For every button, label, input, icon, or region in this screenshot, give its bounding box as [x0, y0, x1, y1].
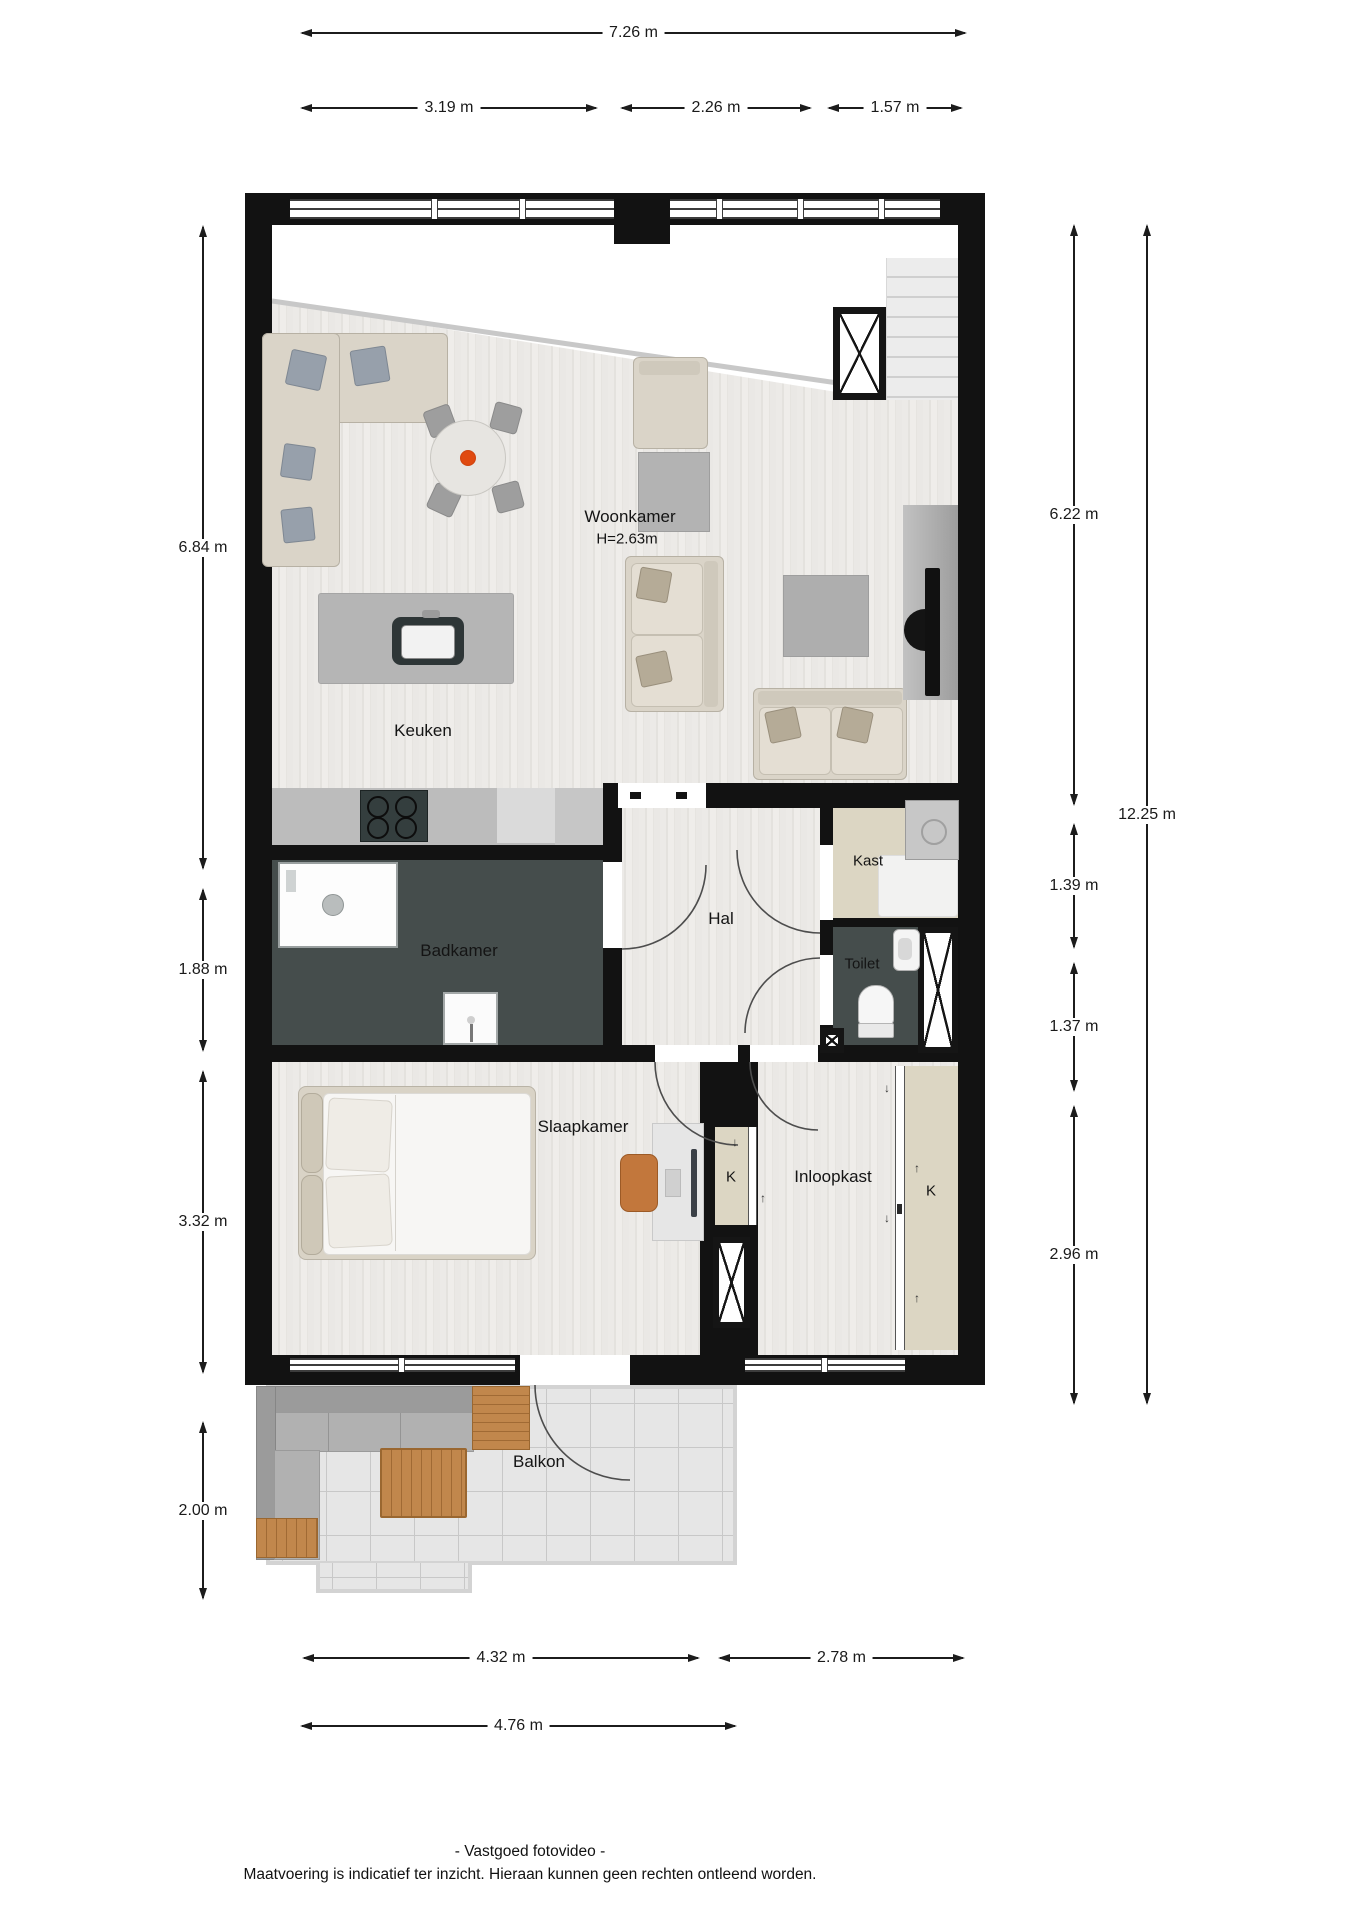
arrow-down-icon [199, 1588, 207, 1600]
opening-dash [676, 792, 687, 799]
shower-control [286, 870, 296, 892]
headboard-cushion [301, 1175, 323, 1255]
headboard-cushion [301, 1093, 323, 1173]
armchair-back [639, 361, 700, 375]
burner [395, 796, 417, 818]
desk [652, 1123, 704, 1241]
arrow-up-icon [199, 1070, 207, 1082]
room-label-toilet: Toilet [844, 956, 879, 973]
toilet-bowl-icon [858, 985, 894, 1025]
slide-arrow-down-icon: ↓ [884, 1082, 890, 1094]
floorplan-canvas: ↓ ↑ ↓ ↑ ↓ ↑ [0, 0, 1358, 1920]
sofa-pillow [836, 706, 874, 744]
dim-bottom-seg-2: 2.78 m [718, 1648, 965, 1668]
dim-label: 7.26 m [602, 24, 665, 42]
arrow-up-icon [1143, 224, 1151, 236]
dim-right-2: 1.39 m [1064, 823, 1084, 949]
rug [783, 575, 869, 657]
arrow-right-icon [586, 104, 598, 112]
arrow-down-icon [199, 1040, 207, 1052]
outdoor-table [380, 1448, 467, 1518]
dim-label: 3.19 m [418, 99, 481, 117]
elevator-shaft-icon [833, 307, 886, 400]
kitchen-sink [392, 617, 464, 665]
dining-table [430, 420, 506, 496]
outdoor-sofa-seat [256, 1412, 474, 1452]
slide-arrow-up-icon: ↑ [914, 1292, 920, 1304]
sofa-pillow [635, 650, 673, 688]
dim-label: 1.88 m [172, 961, 235, 979]
basin-bowl [898, 938, 912, 960]
door-handle [897, 1204, 902, 1214]
wall-kast-toilet [820, 918, 958, 927]
dim-left-1: 6.84 m [193, 225, 213, 870]
arrow-down-icon [1143, 1393, 1151, 1405]
dim-label: 4.32 m [470, 1649, 533, 1667]
arrow-up-icon [1070, 1105, 1078, 1117]
arrow-left-icon [302, 1654, 314, 1662]
sofa-bottom [753, 688, 907, 780]
arrow-right-icon [955, 29, 967, 37]
arrow-down-icon [1070, 937, 1078, 949]
dim-label: 3.32 m [172, 1213, 235, 1231]
arrow-left-icon [300, 29, 312, 37]
arrow-down-icon [1070, 1393, 1078, 1405]
desk-chair [620, 1154, 658, 1212]
bed [298, 1086, 536, 1260]
dim-left-3: 3.32 m [193, 1070, 213, 1374]
arrow-up-icon [199, 1421, 207, 1433]
balcony-step [316, 1563, 472, 1593]
dim-label: 4.76 m [487, 1717, 550, 1735]
kast-door-opening [820, 845, 833, 920]
shaft-small-icon [820, 1028, 844, 1053]
footer: - Vastgoed fotovideo - Maatvoering is in… [60, 1840, 1000, 1886]
laundry-counter [878, 855, 958, 917]
opening-dash [630, 792, 641, 799]
arrow-right-icon [688, 1654, 700, 1662]
outdoor-sofa-armrest [472, 1386, 530, 1450]
inloopkast-door-opening [750, 1045, 818, 1062]
arrow-right-icon [951, 104, 963, 112]
bed-pillow [325, 1173, 393, 1248]
window-mullion [398, 1358, 405, 1372]
toilet-hand-basin [893, 929, 920, 971]
wall-right [958, 193, 985, 1385]
arrow-left-icon [300, 1722, 312, 1730]
slide-arrow-up-icon: ↑ [760, 1192, 766, 1204]
shower-head-icon [322, 894, 344, 916]
burner [367, 796, 389, 818]
window-mullion [797, 199, 804, 219]
sofa-center [625, 556, 724, 712]
sofa-back [758, 691, 902, 705]
dim-label: 2.96 m [1043, 1246, 1106, 1264]
shaft-closet-column-icon [713, 1237, 750, 1328]
room-label-hal: Hal [708, 909, 734, 929]
dim-right-4: 2.96 m [1064, 1105, 1084, 1405]
burner [395, 817, 417, 839]
sofa-back [704, 561, 718, 707]
dim-top-seg-2: 2.26 m [620, 98, 812, 118]
slaapkamer-door-opening [655, 1045, 738, 1062]
arrow-up-icon [199, 225, 207, 237]
outdoor-sofa-back [256, 1386, 474, 1414]
arrow-left-icon [300, 104, 312, 112]
room-label-kast: Kast [853, 853, 883, 870]
sink-drain [467, 1016, 475, 1024]
room-label-keuken: Keuken [394, 721, 452, 741]
sofa-pillow [349, 345, 390, 386]
dim-label: 12.25 m [1111, 806, 1183, 824]
cushion-divider [328, 1413, 329, 1451]
sofa-pillow [764, 706, 802, 744]
arrow-down-icon [199, 1362, 207, 1374]
arrow-down-icon [1070, 1080, 1078, 1092]
window-mullion [821, 1358, 828, 1372]
slide-arrow-down-icon: ↓ [732, 1136, 738, 1148]
duvet-fold-line [395, 1095, 396, 1251]
window-top-left [290, 199, 614, 219]
dim-label: 2.26 m [685, 99, 748, 117]
balcony-door-opening [520, 1355, 630, 1385]
room-label-inloopkast: Inloopkast [794, 1167, 872, 1187]
dim-label: 6.22 m [1043, 506, 1106, 524]
dim-label: 1.39 m [1043, 877, 1106, 895]
room-height-note: H=2.63m [596, 531, 657, 548]
badkamer-door-opening [603, 862, 622, 948]
tv-icon [925, 568, 940, 696]
sofa-pillow [280, 506, 315, 543]
bed-pillow [325, 1097, 393, 1172]
closet-left-sliding-door [748, 1127, 757, 1225]
sink-tap-icon [470, 1024, 473, 1042]
arrow-down-icon [199, 858, 207, 870]
floor-closet-right [905, 1066, 958, 1350]
dim-label: 2.78 m [810, 1649, 873, 1667]
window-mullion [878, 199, 885, 219]
shaft-small-x [824, 1033, 840, 1048]
window-mullion [519, 199, 526, 219]
slide-arrow-down-icon: ↓ [884, 1212, 890, 1224]
dim-label: 1.37 m [1043, 1018, 1106, 1036]
dim-top-total: 7.26 m [300, 23, 967, 43]
wall-hal-bottom [245, 1045, 985, 1062]
window-inloopkast [745, 1358, 905, 1372]
dim-right-total: 12.25 m [1137, 224, 1157, 1405]
sofa-pillow [280, 443, 316, 481]
arrow-right-icon [800, 104, 812, 112]
outdoor-sofa-base [256, 1518, 318, 1558]
room-label-slaapkamer: Slaapkamer [538, 1117, 629, 1137]
washer-drum-icon [921, 819, 947, 845]
window-mullion [716, 199, 723, 219]
room-label-closet-left: K [726, 1169, 736, 1186]
dim-label: 6.84 m [172, 539, 235, 557]
shower [278, 862, 398, 948]
flower-vase-icon [460, 450, 476, 466]
wall-top-pillar [614, 193, 670, 244]
dim-right-3: 1.37 m [1064, 962, 1084, 1092]
keyboard [665, 1169, 681, 1197]
room-label-badkamer: Badkamer [420, 941, 497, 961]
kitchen-appliance [555, 788, 603, 845]
closet-right-sliding-door [895, 1066, 905, 1350]
arrow-right-icon [953, 1654, 965, 1662]
burner [367, 817, 389, 839]
hal-passage-opening [618, 783, 706, 808]
window-top-right [670, 199, 940, 219]
footer-disclaimer: Maatvoering is indicatief ter inzicht. H… [60, 1863, 1000, 1886]
window-mullion [431, 199, 438, 219]
sink-basin [401, 625, 455, 659]
cushion-divider [400, 1413, 401, 1451]
cooktop [360, 790, 428, 842]
arrow-down-icon [1070, 794, 1078, 806]
armchair [633, 357, 708, 449]
monitor-icon [691, 1149, 697, 1217]
toilet-seat [858, 1023, 894, 1038]
dim-label: 1.57 m [864, 99, 927, 117]
room-label-closet-right: K [926, 1183, 936, 1200]
dim-top-seg-1: 3.19 m [300, 98, 598, 118]
dim-right-1: 6.22 m [1064, 224, 1084, 806]
arrow-left-icon [620, 104, 632, 112]
footer-credit: - Vastgoed fotovideo - [60, 1840, 1000, 1863]
kitchen-appliance [497, 788, 555, 843]
slide-arrow-up-icon: ↑ [914, 1162, 920, 1174]
arrow-up-icon [199, 888, 207, 900]
dim-left-4: 2.00 m [193, 1421, 213, 1600]
bathroom-sink [443, 992, 498, 1045]
dim-bottom-total: 4.76 m [300, 1716, 737, 1736]
window-slaapkamer [290, 1358, 515, 1372]
dim-bottom-seg-1: 4.32 m [302, 1648, 700, 1668]
arrow-right-icon [725, 1722, 737, 1730]
sofa-pillow [285, 349, 328, 392]
wall-keuken-badkamer [245, 845, 622, 860]
sink-faucet-icon [422, 610, 440, 618]
staircase [886, 258, 959, 400]
dim-top-seg-3: 1.57 m [827, 98, 963, 118]
washing-machine [905, 800, 959, 860]
dim-left-2: 1.88 m [193, 888, 213, 1052]
room-label-woonkamer: Woonkamer [584, 507, 675, 527]
sofa-pillow [635, 566, 672, 603]
arrow-up-icon [1070, 962, 1078, 974]
room-label-balkon: Balkon [513, 1452, 565, 1472]
shaft-toilet-icon [918, 927, 958, 1053]
arrow-left-icon [827, 104, 839, 112]
arrow-up-icon [1070, 823, 1078, 835]
dim-label: 2.00 m [172, 1502, 235, 1520]
toilet-door-opening [820, 955, 833, 1025]
arrow-left-icon [718, 1654, 730, 1662]
arrow-up-icon [1070, 224, 1078, 236]
